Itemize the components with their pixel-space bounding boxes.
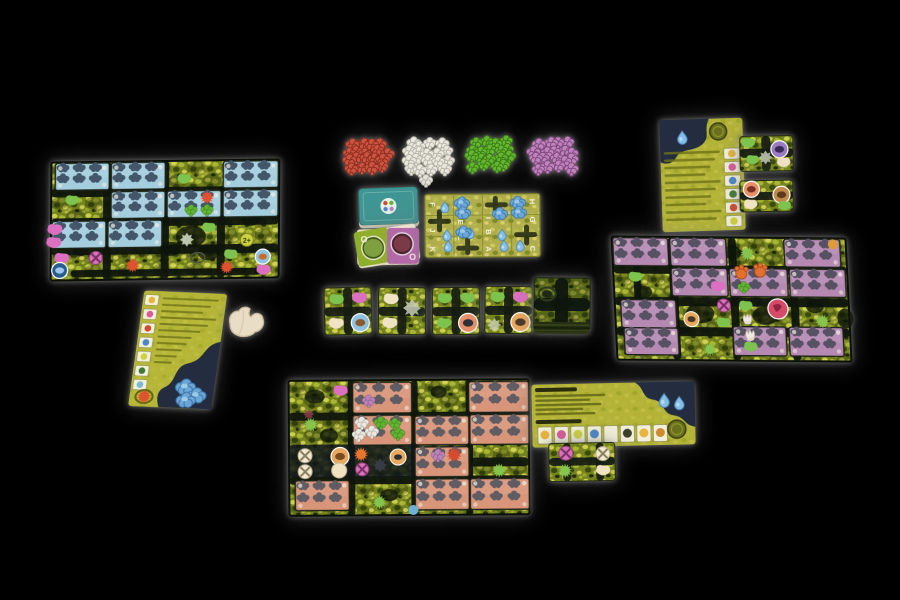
svg-text:B: B [484, 229, 493, 235]
svg-text:K: K [428, 247, 437, 253]
svg-text:A: A [484, 246, 493, 252]
svg-text:E: E [456, 220, 465, 225]
svg-text:2+: 2+ [243, 238, 251, 245]
svg-text:O: O [409, 252, 416, 262]
svg-text:F: F [428, 202, 437, 207]
svg-text:I: I [484, 217, 493, 219]
svg-text:G: G [528, 217, 537, 223]
svg-text:J: J [428, 228, 437, 232]
svg-text:C: C [528, 246, 537, 252]
svg-text:H: H [528, 199, 537, 205]
